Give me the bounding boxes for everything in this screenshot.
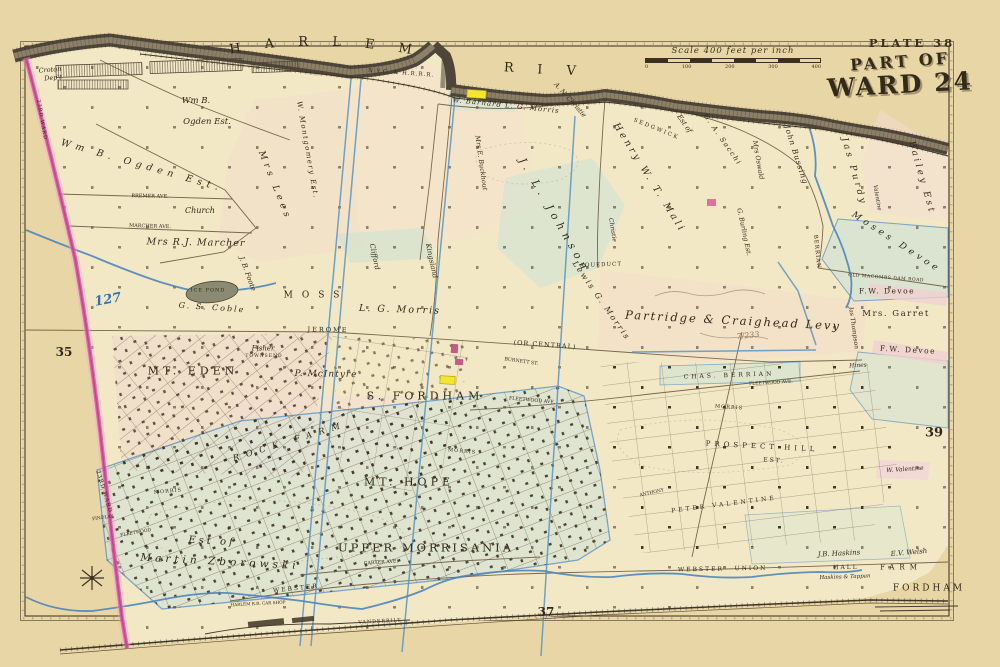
scale-label: Scale 400 feet per inch (645, 46, 821, 56)
red-building (707, 199, 716, 206)
scale-tick: 200 (725, 64, 735, 70)
scale-tick: 400 (811, 64, 821, 70)
scale-tick: 100 (682, 64, 692, 70)
street-grids (26, 42, 948, 646)
windmill-icon (80, 566, 104, 590)
scale-ticks: 0100200300400 (645, 64, 821, 70)
yellow-highlight-building (467, 89, 487, 98)
red-building (455, 359, 463, 365)
yellow-highlight-building (440, 376, 455, 385)
scale-bar: Scale 400 feet per inch 0100200300400 (645, 46, 821, 70)
red-building (451, 344, 458, 353)
scale-bar-graphic (645, 58, 821, 63)
scale-tick: 0 (645, 64, 648, 70)
scale-tick: 300 (768, 64, 778, 70)
atlas-map-plate: HARLEM RIVER N.Y.C. & H.R.R.R. CrotonDep… (0, 0, 1000, 667)
